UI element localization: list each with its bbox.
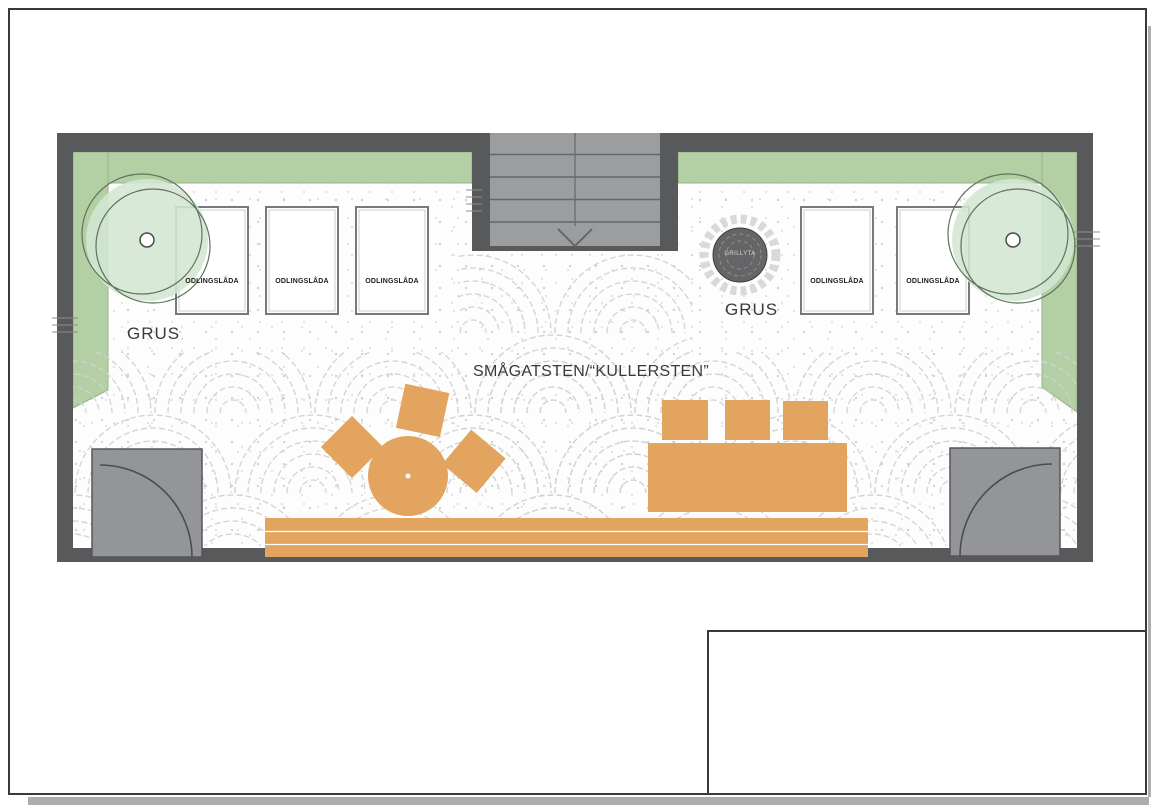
drawing-sheet: ODLINGSLÅDA ODLINGSLÅDA ODLINGSLÅDA ODLI… <box>0 0 1159 811</box>
title-block: UTFORMNINGSFÖRSLAG BRF BJÖRCKSGATAN 48 F… <box>707 630 1147 795</box>
entrance-right <box>950 448 1060 556</box>
gravel-label-right: GRUS <box>725 300 778 320</box>
paving-label: SMÅGATSTEN/“KULLERSTEN” <box>473 363 709 381</box>
planter-label: ODLINGSLÅDA <box>266 278 338 285</box>
long-bench <box>265 518 868 557</box>
planter-label: ODLINGSLÅDA <box>176 278 248 285</box>
gravel-label-left: GRUS <box>127 324 180 344</box>
dining-chair <box>783 401 828 440</box>
dining-table <box>648 443 847 512</box>
staircase <box>490 133 660 246</box>
grill-label: GRILLYTA <box>713 251 767 257</box>
planter-label: ODLINGSLÅDA <box>801 278 873 285</box>
planter-label: ODLINGSLÅDA <box>897 278 969 285</box>
planter-label: ODLINGSLÅDA <box>356 278 428 285</box>
dining-chair <box>725 400 770 440</box>
dining-chair <box>662 400 708 440</box>
entrance-left <box>92 449 202 557</box>
round-table-chair <box>396 384 449 437</box>
